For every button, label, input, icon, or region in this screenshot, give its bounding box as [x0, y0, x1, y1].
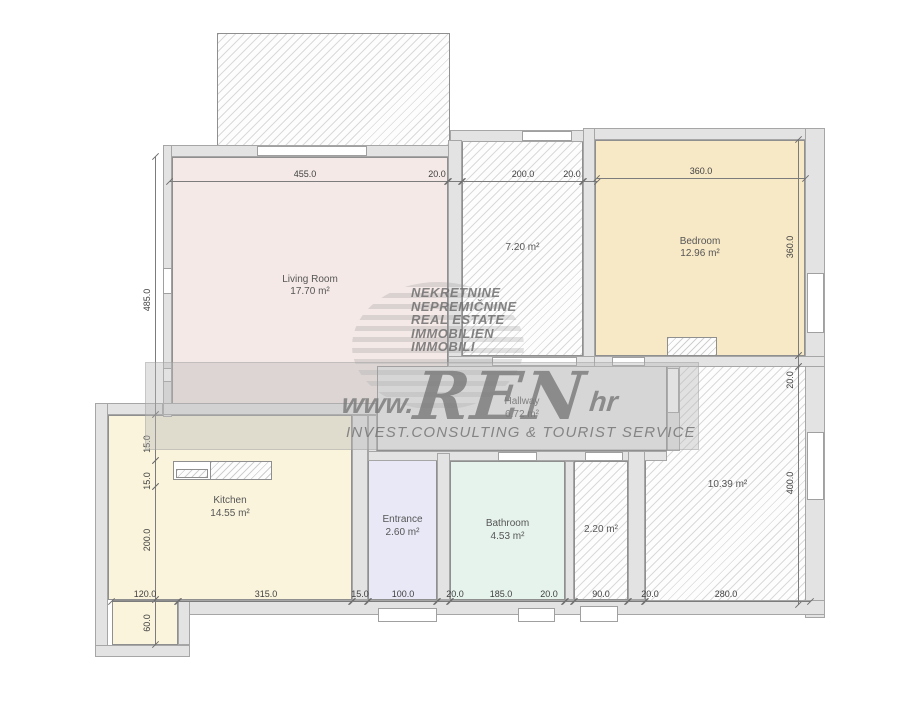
- dimension-label: 400.0: [785, 472, 795, 495]
- window-opening: [807, 273, 824, 333]
- dimension-label: 100.0: [392, 589, 415, 599]
- room-label: Hallway: [504, 396, 539, 409]
- window-opening: [257, 146, 367, 156]
- room-area: 14.55 m²: [210, 508, 249, 521]
- dimension-line: [368, 601, 437, 602]
- wall: [352, 415, 368, 600]
- wall: [178, 600, 190, 645]
- dimension-label: 20.0: [785, 371, 795, 389]
- dimension-line: [798, 140, 799, 356]
- dimension-line: [597, 178, 805, 179]
- window-opening: [612, 357, 645, 366]
- dimension-line: [155, 600, 156, 645]
- wall: [628, 451, 645, 600]
- wall: [368, 415, 377, 453]
- room-room-220: 2.20 m²: [574, 461, 628, 600]
- window-opening: [492, 357, 577, 366]
- window-opening: [163, 368, 172, 382]
- dimension-label: 315.0: [255, 589, 278, 599]
- wall: [95, 645, 190, 657]
- dimension-label: 485.0: [142, 289, 152, 312]
- floor-plan-canvas: 10.39 m²Living Room17.70 m²7.20 m²Bedroo…: [0, 0, 900, 710]
- dimension-label: 20.0: [446, 589, 464, 599]
- wall: [163, 403, 377, 415]
- dimension-line: [155, 157, 156, 415]
- dimension-line: [450, 601, 565, 602]
- room-bathroom: Bathroom4.53 m²: [450, 461, 565, 600]
- dimension-label: 455.0: [294, 169, 317, 179]
- room-balcony: [217, 33, 450, 155]
- room-label: Kitchen: [213, 495, 246, 508]
- room-area: 10.39 m²: [708, 479, 747, 492]
- room-label: Bedroom: [680, 236, 721, 249]
- dimension-line: [462, 181, 583, 182]
- dimension-label: 15.0: [142, 435, 152, 453]
- room-entrance: Entrance2.60 m²: [368, 453, 437, 600]
- dimension-label: 360.0: [785, 236, 795, 259]
- room-area: 6.72 m²: [505, 409, 539, 422]
- dimension-line: [155, 415, 156, 461]
- dimension-label: 360.0: [690, 166, 713, 176]
- dimension-label: 15.0: [142, 472, 152, 490]
- room-area: 2.20 m²: [584, 524, 618, 537]
- kitchen-counter-hatch: [176, 469, 208, 478]
- dimension-line: [170, 181, 448, 182]
- dimension-label: 90.0: [592, 589, 610, 599]
- dimension-label: 20.0: [428, 169, 446, 179]
- dimension-line: [178, 601, 352, 602]
- window-opening: [163, 268, 172, 294]
- dimension-label: 20.0: [540, 589, 558, 599]
- window-opening: [585, 452, 623, 461]
- kitchen-counter-hatch: [210, 461, 272, 480]
- room-label: Bathroom: [486, 518, 529, 531]
- window-opening: [378, 608, 437, 622]
- window-opening: [522, 131, 572, 141]
- room-area: 17.70 m²: [290, 286, 329, 299]
- room-hallway: Hallway6.72 m²: [377, 366, 667, 451]
- dimension-line: [583, 181, 597, 182]
- window-opening: [518, 608, 555, 622]
- wall: [448, 140, 462, 366]
- dimension-label: 185.0: [490, 589, 513, 599]
- bedroom-door-threshold: [667, 337, 717, 356]
- dimension-label: 20.0: [563, 169, 581, 179]
- dimension-line: [645, 601, 810, 602]
- wall: [583, 128, 825, 140]
- dimension-line: [155, 461, 156, 487]
- dimension-label: 60.0: [142, 614, 152, 632]
- dimension-label: 280.0: [715, 589, 738, 599]
- wall: [178, 600, 825, 615]
- room-area: 2.60 m²: [386, 527, 420, 540]
- dimension-line: [798, 367, 799, 605]
- window-opening: [807, 432, 824, 500]
- dimension-label: 200.0: [512, 169, 535, 179]
- dimension-label: 120.0: [134, 589, 157, 599]
- window-opening: [580, 606, 618, 622]
- window-opening: [498, 452, 537, 461]
- wall: [583, 128, 595, 367]
- dimension-label: 15.0: [351, 589, 369, 599]
- room-label: Living Room: [282, 274, 338, 287]
- dimension-label: 200.0: [142, 529, 152, 552]
- dimension-label: 20.0: [641, 589, 659, 599]
- room-area: 7.20 m²: [506, 242, 540, 255]
- window-opening: [667, 368, 679, 413]
- wall: [95, 403, 108, 657]
- wall: [805, 128, 825, 618]
- room-area: 12.96 m²: [680, 248, 719, 261]
- room-area: 4.53 m²: [491, 531, 525, 544]
- dimension-line: [112, 601, 178, 602]
- dimension-line: [155, 487, 156, 600]
- dimension-line: [574, 601, 628, 602]
- room-label: Entrance: [382, 514, 422, 527]
- wall: [437, 453, 450, 600]
- wall: [565, 461, 574, 600]
